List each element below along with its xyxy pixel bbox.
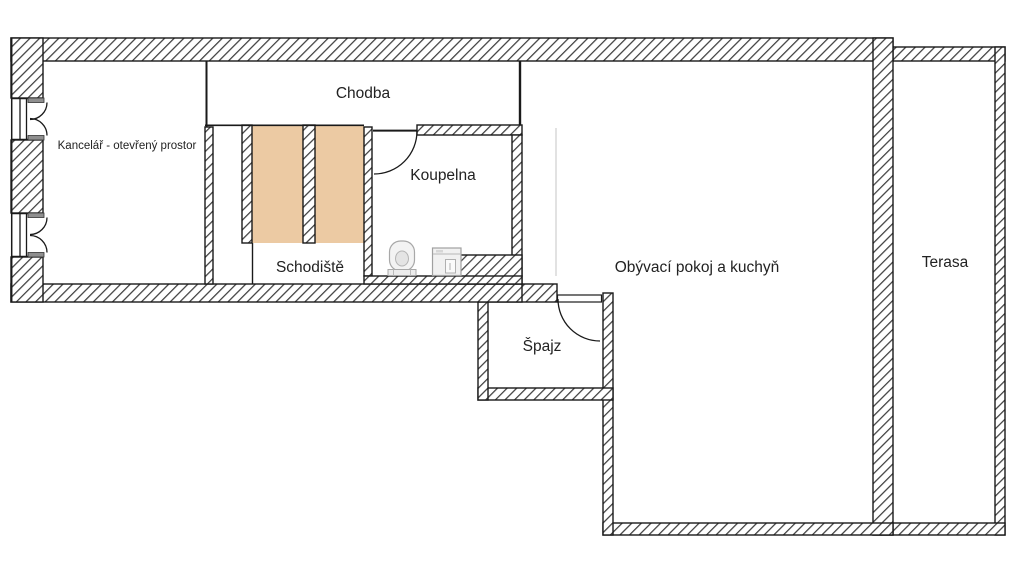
floor-plan-page: Kancelář - otevřený prostor Chodba Koupe… <box>0 0 1024 580</box>
washing-machine-icon <box>433 248 462 276</box>
wall-left-lower <box>11 257 43 302</box>
pantry-door-leaf <box>558 295 602 302</box>
toilet-tank <box>388 270 416 276</box>
room-label-koupelna: Koupelna <box>410 167 476 184</box>
wall-stair-divider-1 <box>242 125 252 243</box>
toilet-seat <box>396 251 409 266</box>
wall-top-main <box>11 38 893 61</box>
washer-control-knob <box>436 250 443 253</box>
wall-living-terrace-divider <box>873 38 893 535</box>
window1-leaf-bottom <box>28 136 44 141</box>
wall-spajz-left <box>478 297 488 400</box>
wall-living-left-lower <box>603 293 613 535</box>
wall-bathroom-top <box>417 125 522 135</box>
room-label-terasa: Terasa <box>922 254 969 271</box>
stair-flight-left <box>252 126 303 243</box>
toilet-icon <box>388 241 416 276</box>
wall-spajz-bottom <box>478 388 613 400</box>
room-label-spajz: Špajz <box>523 338 562 355</box>
wall-stair-left <box>205 127 213 284</box>
wall-living-bottom <box>603 523 893 535</box>
room-label-schodiste: Schodiště <box>276 259 344 276</box>
window2-leaf-top <box>28 213 44 218</box>
room-label-chodba: Chodba <box>336 85 391 102</box>
wall-bathroom-bottom <box>364 276 522 284</box>
room-label-kancelar: Kancelář - otevřený prostor <box>58 140 197 152</box>
floor-plan: Kancelář - otevřený prostor Chodba Koupe… <box>0 0 1024 580</box>
wall-terrace-right <box>995 47 1005 535</box>
wall-terrace-top <box>893 47 1005 61</box>
window1-leaf-top <box>28 98 44 103</box>
window2-leaf-bottom <box>28 253 44 258</box>
wall-left-upper <box>11 38 43 98</box>
wall-left-middle <box>11 140 43 213</box>
wall-stair-divider-2 <box>303 125 315 243</box>
room-label-obyvaci-pokoj: Obývací pokoj a kuchyň <box>615 259 780 276</box>
wall-bottom-main <box>11 284 522 302</box>
wall-bathroom-left <box>364 127 372 276</box>
stair-flight-right <box>315 126 364 243</box>
